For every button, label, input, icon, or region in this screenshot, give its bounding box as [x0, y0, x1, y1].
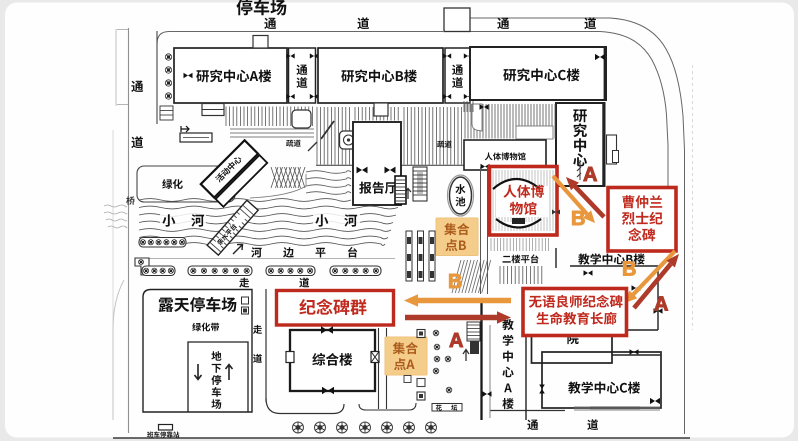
svg-text:B: B	[571, 208, 585, 230]
svg-text:A: A	[449, 330, 463, 352]
svg-text:A: A	[654, 294, 668, 316]
svg-text:A: A	[583, 164, 597, 186]
svg-text:B: B	[448, 271, 462, 293]
svg-text:B: B	[622, 259, 636, 281]
